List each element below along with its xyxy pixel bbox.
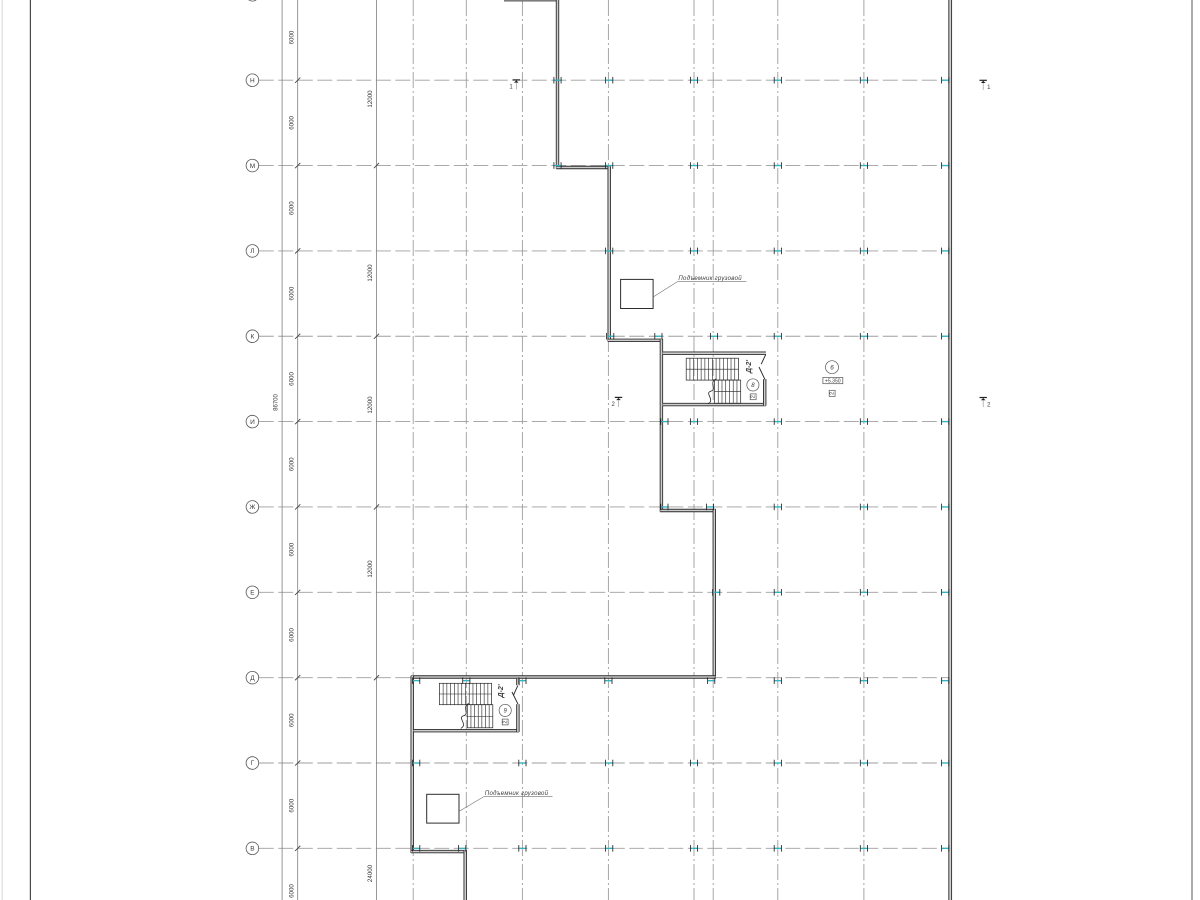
svg-text:6000: 6000 [289,628,296,642]
svg-text:Л: Л [250,248,254,255]
svg-text:6000: 6000 [289,30,296,44]
svg-text:2: 2 [987,402,991,408]
svg-text:И: И [250,419,255,426]
svg-text:8: 8 [751,383,755,389]
svg-text:К: К [251,333,255,340]
svg-text:Г: Г [251,760,255,767]
svg-text:2: 2 [503,721,509,724]
svg-text:6000: 6000 [289,457,296,471]
svg-text:2: 2 [751,395,757,398]
svg-text:6000: 6000 [289,798,296,812]
svg-text:6000: 6000 [289,884,296,898]
svg-text:9: 9 [504,709,508,715]
svg-text:1: 1 [509,85,513,91]
svg-text:М: М [250,163,255,170]
svg-text:1: 1 [987,85,991,91]
svg-text:Ж: Ж [249,504,255,511]
svg-text:Д: Д [250,675,255,682]
svg-text:В: В [250,846,254,853]
svg-text:Подъемник грузовой: Подъемник грузовой [678,275,742,282]
svg-text:+5.350: +5.350 [825,379,841,385]
svg-text:86700: 86700 [274,393,280,410]
svg-text:12000: 12000 [367,560,374,578]
svg-text:6000: 6000 [289,286,296,300]
svg-text:12000: 12000 [367,264,374,282]
svg-text:6000: 6000 [289,201,296,215]
svg-text:Д-2': Д-2' [496,684,505,699]
svg-text:Д-2': Д-2' [744,360,753,375]
svg-text:6: 6 [830,365,834,372]
svg-text:6000: 6000 [289,542,296,556]
svg-text:6000: 6000 [289,371,296,385]
svg-text:12000: 12000 [367,90,374,108]
svg-text:Н: Н [250,77,255,84]
svg-text:Подъемник грузовой: Подъемник грузовой [485,790,549,797]
svg-text:2: 2 [612,402,616,408]
svg-text:2: 2 [830,392,836,395]
svg-text:24000: 24000 [367,864,374,882]
svg-text:6000: 6000 [289,713,296,727]
svg-text:Е: Е [250,590,255,597]
svg-text:6000: 6000 [289,115,296,129]
svg-text:12000: 12000 [367,396,374,414]
